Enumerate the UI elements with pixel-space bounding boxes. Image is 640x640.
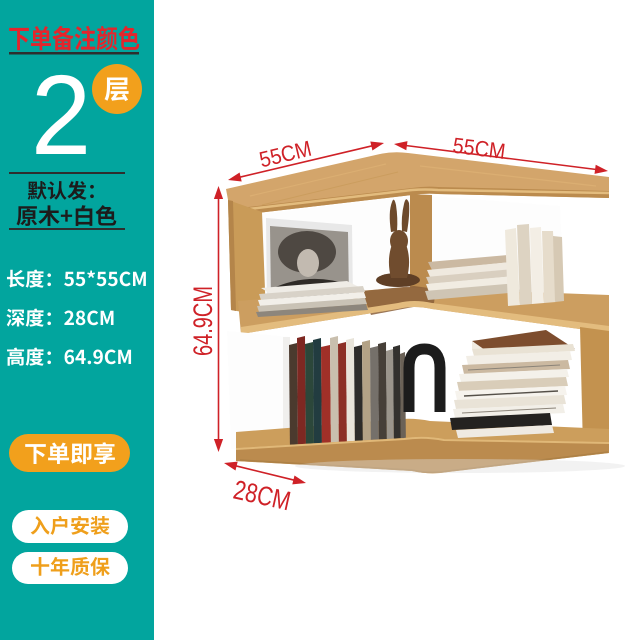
svg-text:2: 2 [31, 53, 91, 178]
svg-text:64.9CM: 64.9CM [188, 286, 219, 356]
